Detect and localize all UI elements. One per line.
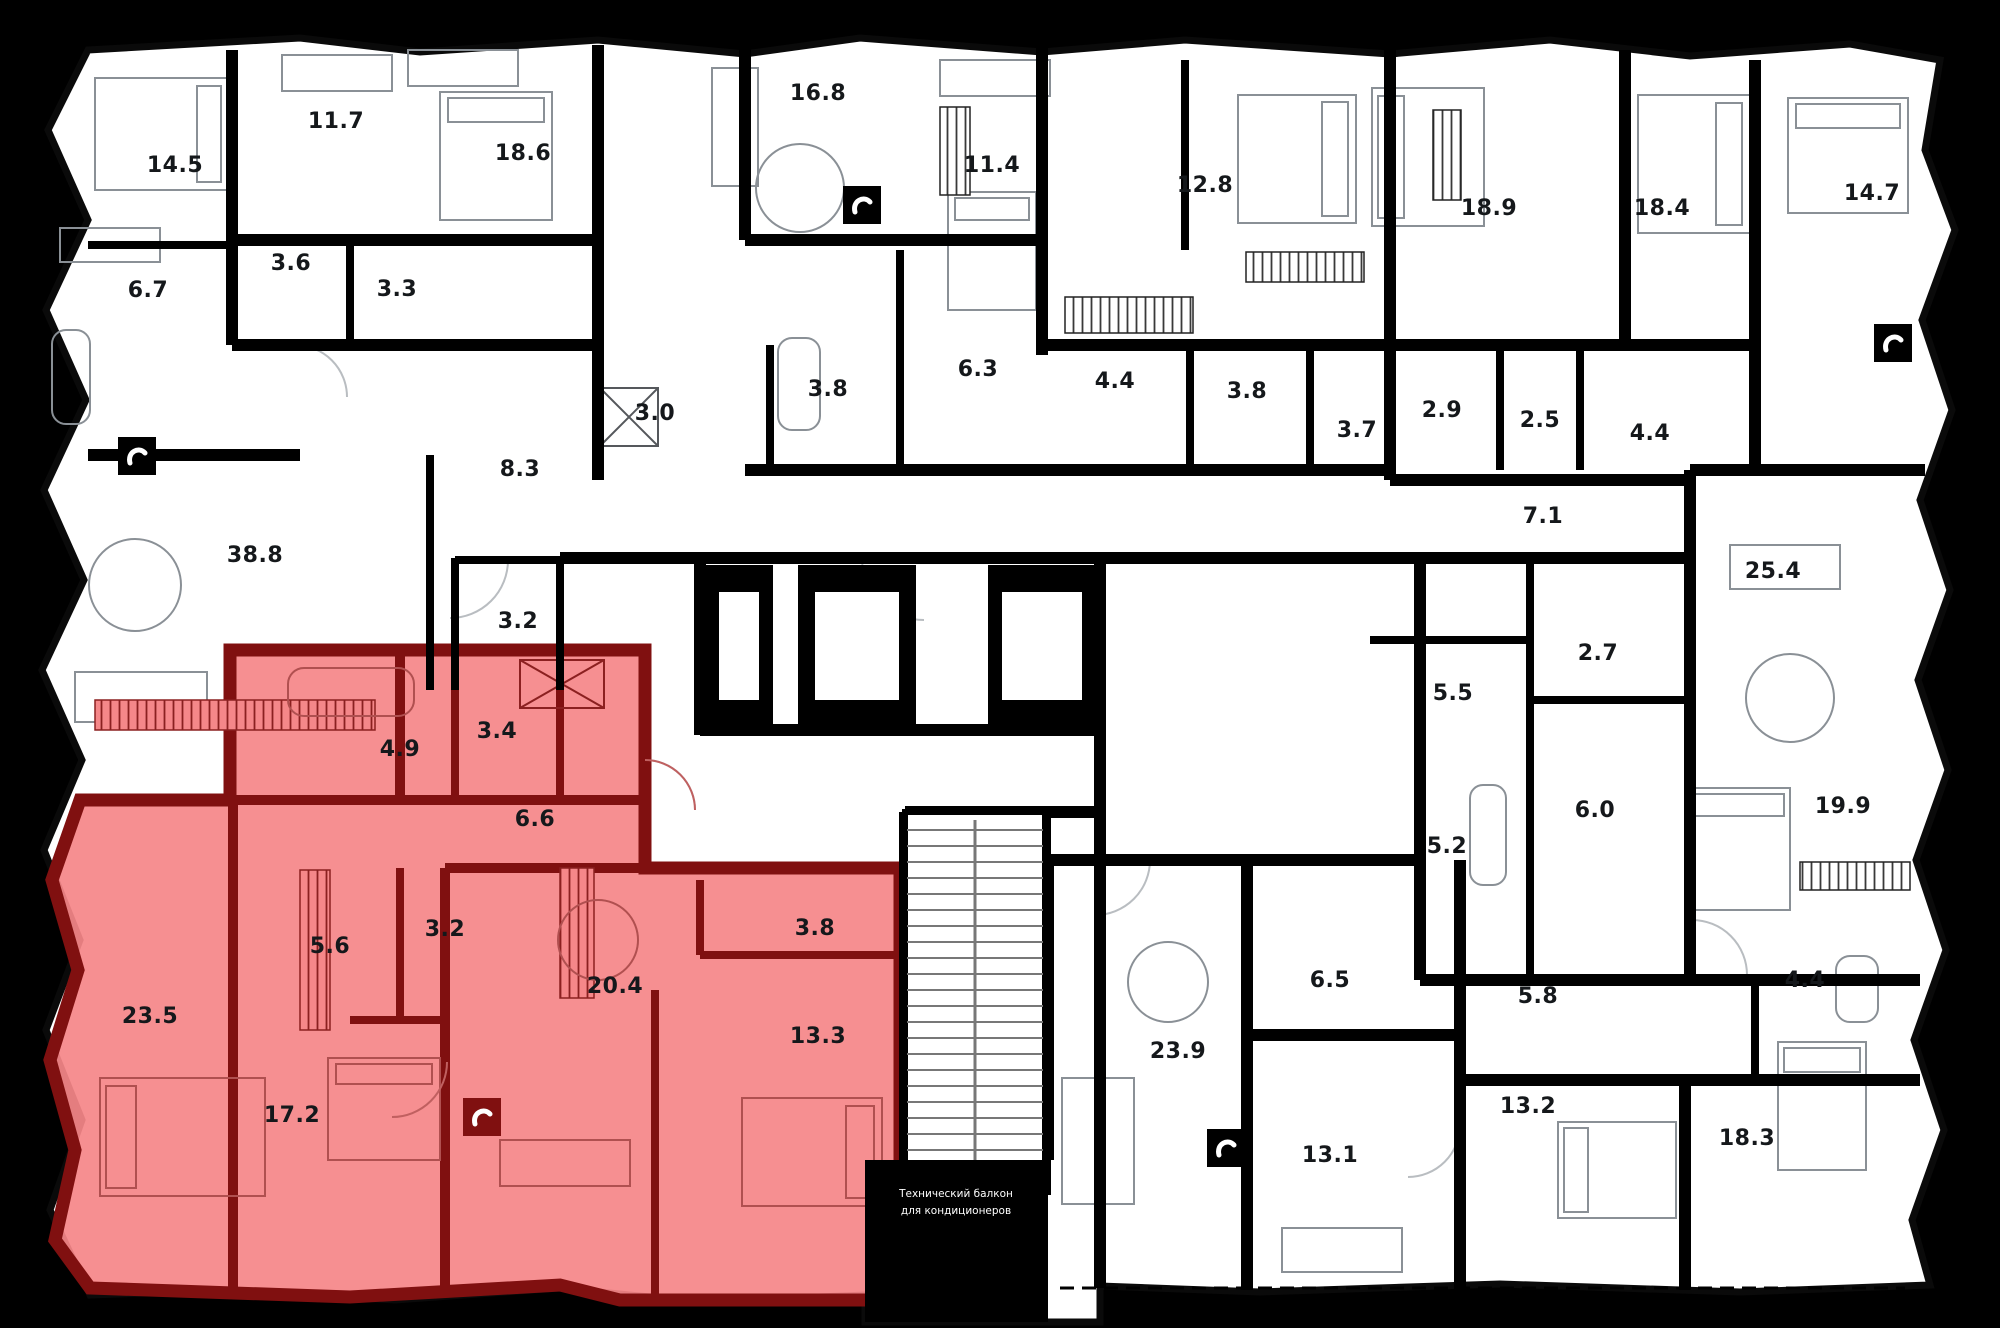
room-area-label: 6.5 <box>1310 968 1350 993</box>
floor-plan-screenshot: Технический балкон для кондиционеров 14.… <box>0 0 2000 1328</box>
room-area-label: 6.6 <box>515 807 555 832</box>
stairwell <box>905 812 1045 1197</box>
room-area-label: 3.6 <box>271 251 311 276</box>
technical-balcony-note-line2: для кондиционеров <box>901 1205 1011 1217</box>
room-area-label: 3.4 <box>477 719 517 744</box>
room-area-label: 20.4 <box>587 974 643 999</box>
room-area-label: 2.9 <box>1422 398 1462 423</box>
elevator-core <box>705 565 1100 727</box>
room-area-label: 3.0 <box>635 401 675 426</box>
room-area-label: 3.3 <box>377 277 417 302</box>
room-area-label: 4.4 <box>1785 968 1825 993</box>
room-area-label: 38.8 <box>227 543 283 568</box>
room-area-label: 2.7 <box>1578 641 1618 666</box>
room-area-label: 23.9 <box>1150 1039 1206 1064</box>
room-area-label: 13.2 <box>1500 1094 1556 1119</box>
room-area-label: 18.4 <box>1634 196 1690 221</box>
room-area-label: 8.3 <box>500 457 540 482</box>
room-area-label: 5.6 <box>310 934 350 959</box>
room-area-label: 16.8 <box>790 81 846 106</box>
room-area-label: 6.0 <box>1575 798 1615 823</box>
room-area-label: 3.8 <box>795 916 835 941</box>
room-area-label: 4.4 <box>1630 421 1670 446</box>
room-area-label: 12.8 <box>1177 173 1233 198</box>
room-area-label: 25.4 <box>1745 559 1801 584</box>
room-area-label: 3.2 <box>425 917 465 942</box>
room-area-label: 18.3 <box>1719 1126 1775 1151</box>
technical-balcony: Технический балкон для кондиционеров <box>865 1160 1048 1322</box>
room-area-label: 18.6 <box>495 141 551 166</box>
room-area-label: 13.1 <box>1302 1143 1358 1168</box>
utility-icon <box>463 1098 501 1136</box>
room-area-label: 3.2 <box>498 609 538 634</box>
utility-icon <box>1874 324 1912 362</box>
technical-balcony-note-line1: Технический балкон <box>898 1188 1013 1200</box>
room-area-label: 5.5 <box>1433 681 1473 706</box>
utility-icon <box>118 437 156 475</box>
room-area-label: 14.7 <box>1844 181 1900 206</box>
room-area-label: 19.9 <box>1815 794 1871 819</box>
utility-icon <box>1207 1129 1245 1167</box>
room-area-label: 7.1 <box>1523 504 1563 529</box>
room-area-label: 23.5 <box>122 1004 178 1029</box>
utility-icon <box>843 186 881 224</box>
room-area-label: 14.5 <box>147 153 203 178</box>
room-area-label: 2.5 <box>1520 408 1560 433</box>
room-area-label: 17.2 <box>264 1103 320 1128</box>
room-area-label: 4.4 <box>1095 369 1135 394</box>
floor-plan-canvas: Технический балкон для кондиционеров 14.… <box>0 0 2000 1328</box>
room-area-label: 6.3 <box>958 357 998 382</box>
room-area-label: 5.2 <box>1427 834 1467 859</box>
room-area-label: 11.4 <box>964 153 1020 178</box>
room-area-label: 5.8 <box>1518 984 1558 1009</box>
room-area-label: 4.9 <box>380 737 420 762</box>
room-area-label: 13.3 <box>790 1024 846 1049</box>
room-area-label: 3.7 <box>1337 418 1377 443</box>
room-area-label: 18.9 <box>1461 196 1517 221</box>
room-area-label: 3.8 <box>1227 379 1267 404</box>
room-area-label: 3.8 <box>808 377 848 402</box>
room-area-label: 6.7 <box>128 278 168 303</box>
room-area-label: 11.7 <box>308 109 364 134</box>
